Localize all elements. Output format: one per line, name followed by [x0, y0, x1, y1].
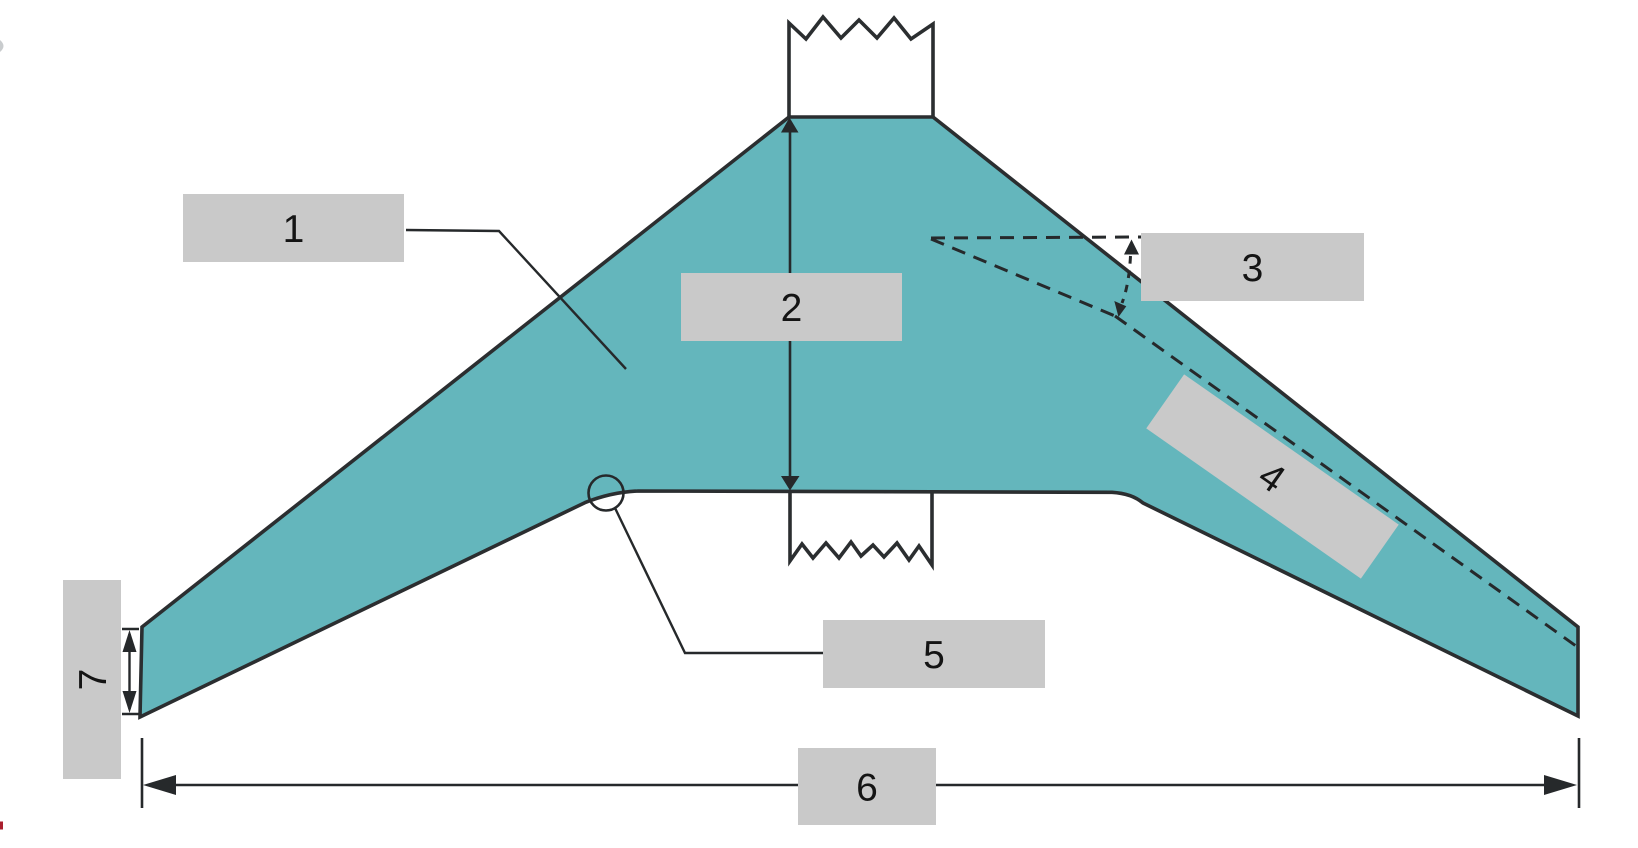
svg-text:1: 1 [283, 208, 305, 251]
svg-text:2: 2 [781, 287, 803, 330]
svg-text:5: 5 [923, 634, 945, 677]
svg-text:6: 6 [856, 767, 878, 810]
svg-text:3: 3 [1242, 247, 1264, 290]
svg-text:7: 7 [72, 669, 115, 691]
